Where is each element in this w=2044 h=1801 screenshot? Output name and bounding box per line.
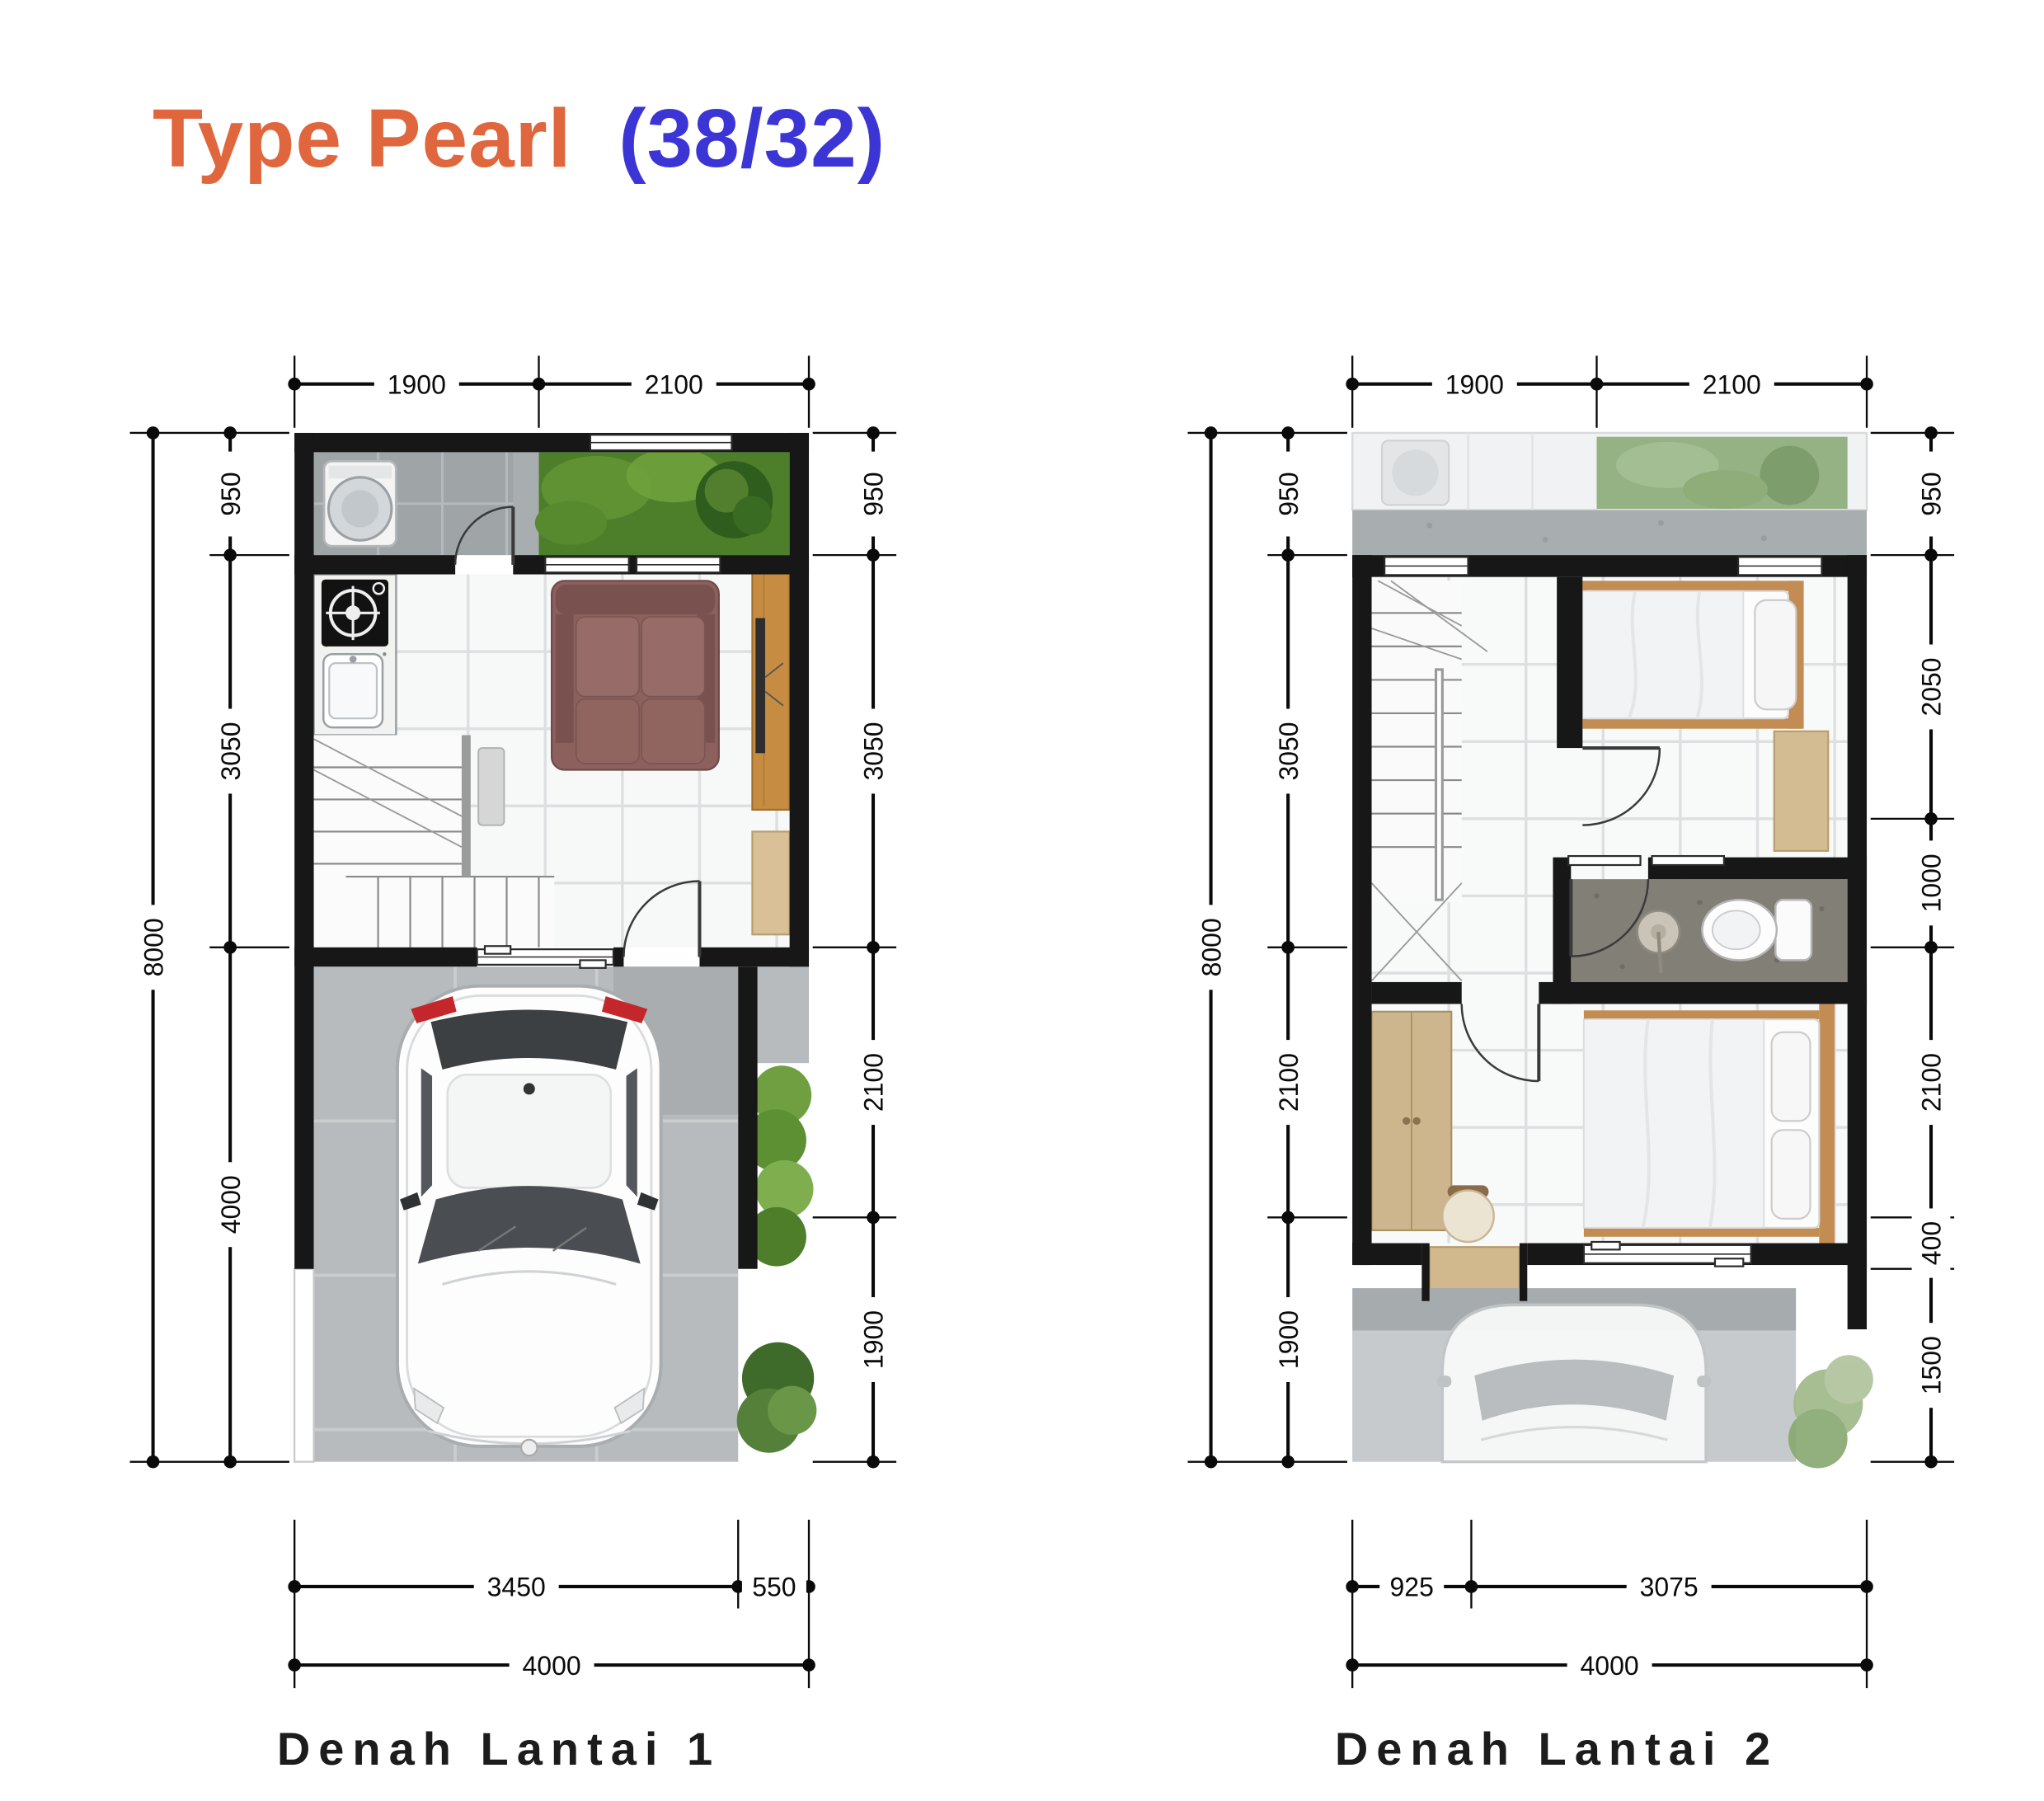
garden-ghost [1596,437,1847,509]
sink-icon [323,654,383,727]
dim-label: 8000 [139,918,168,976]
window-bed1-right [1738,557,1821,575]
dim-label: 3050 [1274,722,1304,780]
floor-plan-sheet: { "title": { "main": "Type Pearl", "suff… [0,0,2044,1801]
dim-label: 1000 [1917,853,1947,912]
canopy-slab [1352,510,1867,556]
sofa-icon [552,581,719,769]
dim-label: 4000 [216,1175,246,1234]
dim-label: 550 [752,1573,796,1602]
stove-icon [322,580,388,647]
wardrobe [1372,1012,1452,1230]
dim-label: 2100 [1917,1053,1947,1112]
dim-label: 950 [216,472,246,515]
floor-plan-lantai-2: 1900 2100 950 3050 2100 1900 8000 950 20… [1166,336,1995,1706]
title-size-spec: (38/32) [618,92,886,185]
dim-label: 8000 [1196,918,1226,976]
garden-top [535,449,790,555]
bedroom1-dresser [1774,731,1829,851]
hall-side-table [478,748,504,825]
floor-plan-lantai-1: 1900 2100 950 3050 4000 8000 950 3050 21… [108,336,937,1706]
dim-label: 2100 [1274,1053,1304,1112]
dim-label: 3075 [1640,1573,1699,1602]
dim-label: 950 [859,472,889,515]
tv-cabinet [752,566,789,810]
tv-icon [755,618,765,754]
dim-label: 1500 [1917,1336,1947,1394]
dim-label: 1900 [859,1310,889,1369]
caption-denah-lantai-2: Denah Lantai 2 [1276,1722,1837,1775]
dim-label: 950 [1917,472,1947,515]
window-living-left [545,557,628,572]
dim-label: 400 [1917,1221,1947,1265]
page-title: Type Pearl (38/32) [153,92,886,185]
carport-curb [294,1269,313,1462]
dim-label: 2100 [1703,369,1761,399]
car-icon [397,986,661,1456]
dim-label: 1900 [1274,1310,1304,1369]
kitchen-counter [314,575,397,736]
toilet-icon [1702,900,1811,960]
washing-machine-icon [324,461,396,546]
dim-label: 4000 [523,1651,581,1681]
balcony-roof [1352,1288,1873,1468]
dim-label: 1900 [1445,369,1504,399]
bathroom [1571,879,1847,982]
bedroom2-bed-icon [1584,1004,1835,1244]
window-top-garden [590,435,732,450]
dim-label: 3050 [859,722,889,780]
dim-label: 4000 [1581,1651,1639,1681]
dim-label: 2100 [859,1053,889,1112]
window-bed1-left [1384,557,1468,575]
dim-label: 925 [1390,1573,1434,1602]
roof-ghost-band [1352,433,1867,510]
window-living-right [637,557,720,572]
chair-seat [1442,1191,1493,1242]
caption-denah-lantai-1: Denah Lantai 1 [218,1722,779,1775]
dim-label: 2050 [1917,657,1947,716]
window-bedroom2 [1584,1242,1751,1267]
title-type-name: Type Pearl [153,92,571,185]
window-front [477,946,613,968]
bedroom1-bed-icon [1582,581,1803,728]
dim-label: 3450 [487,1573,546,1602]
dim-label: 1900 [388,369,446,399]
car-ghost-icon [1437,1305,1711,1461]
dim-label: 3050 [216,722,246,780]
dim-label: 950 [1274,472,1304,515]
shoe-cabinet [752,831,789,934]
dim-label: 2100 [645,369,703,399]
